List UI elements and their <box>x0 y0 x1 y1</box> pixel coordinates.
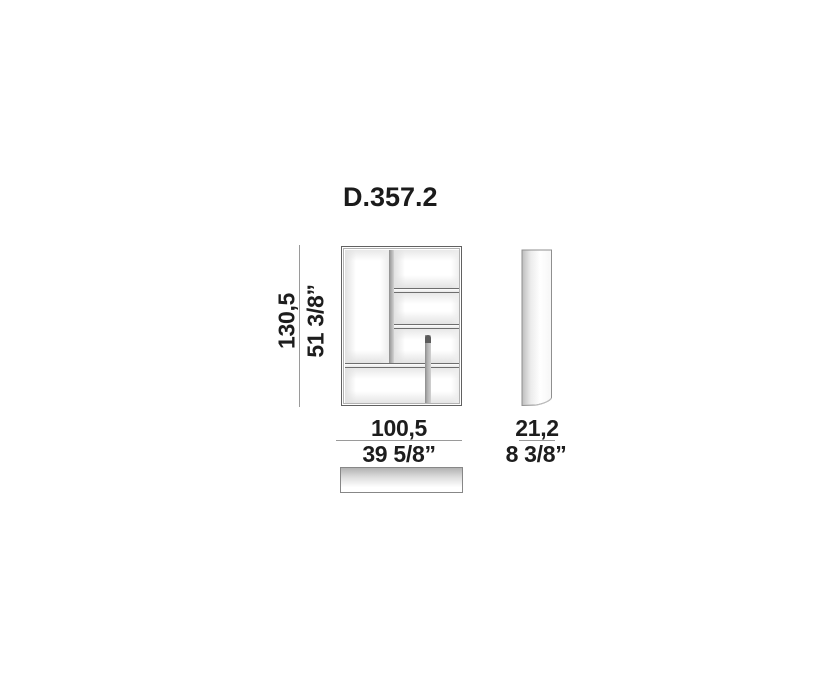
depth-dimension-inches: 8 3/8” <box>506 443 567 466</box>
compartment-right-top <box>394 250 460 288</box>
side-panel-shape <box>522 250 552 406</box>
side-profile-drawing <box>521 249 554 407</box>
compartment-left-tall <box>345 250 389 363</box>
compartment-bottom-row <box>345 368 460 404</box>
product-code-title: D.357.2 <box>343 182 438 213</box>
height-dimension-inches: 51 3/8” <box>305 284 328 357</box>
compartment-right-middle <box>394 293 460 324</box>
product-spec-sheet: D.357.2 130,5 51 3/8” <box>0 0 840 679</box>
front-elevation-drawing <box>341 246 462 406</box>
height-dimension-cm: 130,5 <box>276 293 299 349</box>
width-dimension-cm: 100,5 <box>371 417 427 440</box>
vertical-divider-main <box>389 250 394 367</box>
depth-dimension-cm: 21,2 <box>515 417 559 440</box>
height-dimension-line <box>299 245 300 407</box>
shelf-middle <box>394 324 460 329</box>
divider-top-cap <box>425 335 431 343</box>
shelf-upper <box>394 288 460 293</box>
plan-view-drawing <box>340 467 463 493</box>
vertical-divider-curved <box>425 335 431 404</box>
width-dimension-inches: 39 5/8” <box>362 443 435 466</box>
shelf-full-width <box>345 363 460 368</box>
